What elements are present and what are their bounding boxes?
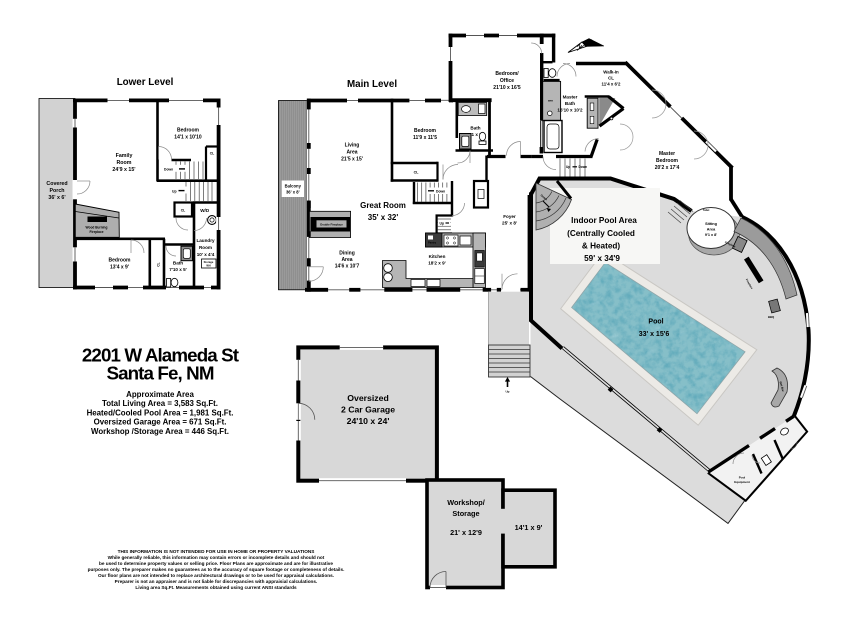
svg-text:11'4 x 6'2: 11'4 x 6'2: [602, 82, 621, 87]
svg-text:21' x 12'9: 21' x 12'9: [450, 528, 482, 537]
svg-text:24'9 x 15': 24'9 x 15': [112, 167, 135, 173]
svg-text:Pool: Pool: [739, 476, 746, 480]
svg-text:& Heated): & Heated): [582, 242, 620, 251]
svg-text:Family: Family: [116, 153, 133, 159]
svg-text:Living area Sq.Ft. Measurement: Living area Sq.Ft. Measurements obtained…: [135, 585, 297, 590]
svg-text:Foyer: Foyer: [503, 214, 516, 219]
svg-text:Master: Master: [563, 95, 578, 100]
svg-text:While generally reliable, this: While generally reliable, this informati…: [108, 555, 325, 560]
svg-text:Covered: Covered: [46, 181, 67, 187]
svg-text:14'1 x 10'10: 14'1 x 10'10: [174, 135, 202, 141]
svg-text:Santa Fe, NM: Santa Fe, NM: [106, 363, 213, 384]
svg-text:THIS INFORMATION IS NOT INTEND: THIS INFORMATION IS NOT INTENDED FOR USE…: [118, 549, 315, 554]
svg-text:33' x 15'6: 33' x 15'6: [639, 331, 670, 338]
svg-text:Storage: Storage: [452, 509, 479, 518]
svg-text:20'2 x 17'4: 20'2 x 17'4: [655, 165, 680, 171]
svg-text:Pool: Pool: [648, 319, 663, 326]
svg-text:Bedroom/: Bedroom/: [495, 71, 519, 77]
svg-text:Bath: Bath: [565, 101, 575, 106]
svg-text:14'1 x 9': 14'1 x 9': [515, 523, 543, 532]
svg-text:Preparer is not an appraiser a: Preparer is not an appraiser and is not …: [115, 579, 318, 584]
svg-text:Down: Down: [164, 168, 173, 172]
svg-text:18'2 x 9': 18'2 x 9': [428, 261, 446, 266]
svg-text:Our floor plans are not intend: Our floor plans are not intended to repl…: [98, 573, 334, 578]
svg-text:BBQ: BBQ: [768, 315, 775, 319]
svg-text:Main Level: Main Level: [347, 79, 397, 90]
svg-text:be used to determine property: be used to determine property values or …: [99, 561, 333, 566]
svg-text:Workshop /Storage Area = 446 S: Workshop /Storage Area = 446 Sq.Ft.: [91, 427, 229, 436]
svg-text:Office: Office: [500, 78, 514, 84]
svg-text:9'1 x 8': 9'1 x 8': [705, 233, 717, 237]
svg-text:Down: Down: [436, 190, 445, 194]
svg-text:Approximate Area: Approximate Area: [126, 390, 194, 399]
svg-text:Area: Area: [346, 150, 357, 156]
svg-text:Down: Down: [579, 165, 588, 169]
svg-text:Workshop/: Workshop/: [447, 498, 485, 507]
svg-text:Area: Area: [341, 257, 352, 263]
svg-text:Porch: Porch: [49, 188, 64, 194]
svg-text:CL: CL: [608, 76, 614, 81]
svg-text:21'5 x 15': 21'5 x 15': [341, 157, 363, 163]
svg-text:Fireplace: Fireplace: [90, 230, 104, 234]
svg-text:Total Living Area = 3,583 Sq.F: Total Living Area = 3,583 Sq.Ft.: [102, 399, 218, 408]
svg-text:Up: Up: [506, 390, 510, 394]
svg-text:Oversized: Oversized: [347, 393, 389, 403]
svg-text:Area: Area: [707, 228, 716, 232]
svg-text:Sitting: Sitting: [705, 222, 717, 226]
svg-text:59' x 34'9: 59' x 34'9: [584, 254, 620, 263]
svg-text:Bedroom: Bedroom: [414, 128, 437, 134]
svg-text:Living: Living: [345, 143, 360, 149]
svg-text:Balcony: Balcony: [285, 184, 302, 189]
svg-text:Double Fireplace: Double Fireplace: [320, 222, 343, 226]
svg-text:Bath: Bath: [173, 261, 183, 266]
svg-text:Toilet: Toilet: [703, 208, 710, 212]
svg-text:16'10 x 10'2: 16'10 x 10'2: [557, 108, 583, 113]
svg-text:11'9 x 11'5: 11'9 x 11'5: [413, 135, 437, 141]
svg-text:25' x 8': 25' x 8': [502, 221, 517, 226]
svg-text:W/D: W/D: [200, 208, 210, 213]
svg-text:Walk-in: Walk-in: [603, 70, 619, 75]
svg-text:Equipment: Equipment: [734, 480, 750, 484]
svg-text:36' x 6': 36' x 6': [48, 195, 65, 201]
svg-text:Bath: Bath: [470, 126, 480, 131]
svg-text:21'10 x 16'5: 21'10 x 16'5: [493, 85, 521, 91]
svg-text:Room: Room: [199, 245, 212, 250]
svg-text:Master: Master: [659, 151, 675, 157]
svg-text:CL: CL: [181, 209, 186, 213]
svg-text:Dining: Dining: [339, 251, 355, 257]
svg-text:36' x 8': 36' x 8': [286, 190, 300, 195]
svg-text:Room: Room: [116, 160, 131, 166]
svg-text:10' x 4'4: 10' x 4'4: [197, 252, 215, 257]
svg-text:Up: Up: [566, 165, 570, 169]
svg-text:2 Car Garage: 2 Car Garage: [341, 405, 395, 415]
svg-text:Up: Up: [440, 222, 445, 226]
svg-text:Indoor Pool Area: Indoor Pool Area: [571, 216, 637, 225]
svg-text:14'6 x 10'7: 14'6 x 10'7: [335, 264, 360, 270]
svg-text:Bedroom: Bedroom: [177, 128, 200, 134]
svg-text:Up: Up: [172, 189, 177, 193]
svg-text:Bedroom: Bedroom: [656, 158, 679, 164]
svg-text:24'10 x 24': 24'10 x 24': [347, 416, 390, 426]
svg-text:7'10 x 5': 7'10 x 5': [169, 267, 187, 272]
svg-text:Pantry: Pantry: [428, 241, 437, 245]
svg-text:Oversized Garage Area = 671 Sq: Oversized Garage Area = 671 Sq.Ft.: [94, 418, 227, 427]
svg-text:Bedroom: Bedroom: [109, 258, 132, 264]
svg-text:wm: wm: [547, 99, 553, 103]
svg-text:Great Room: Great Room: [360, 201, 406, 210]
svg-text:WH: WH: [206, 264, 210, 268]
svg-text:Lower Level: Lower Level: [117, 77, 174, 88]
svg-text:35' x 32': 35' x 32': [368, 213, 399, 222]
svg-text:Storage: Storage: [204, 260, 214, 264]
svg-text:purposes only. The preparer ma: purposes only. The preparer makes no gua…: [88, 567, 345, 572]
svg-text:Kitchen: Kitchen: [429, 254, 446, 259]
svg-text:Heated/Cooled Pool Area = 1,98: Heated/Cooled Pool Area = 1,981 Sq.Ft.: [87, 408, 234, 417]
svg-text:CL: CL: [210, 152, 215, 156]
svg-text:13'4 x 9': 13'4 x 9': [110, 265, 129, 271]
svg-text:CL: CL: [157, 262, 161, 266]
svg-text:CL: CL: [414, 171, 420, 175]
svg-text:Laundry: Laundry: [196, 238, 215, 243]
svg-text:(Centrally Cooled: (Centrally Cooled: [567, 229, 635, 238]
svg-text:Wood Burning: Wood Burning: [86, 226, 108, 230]
